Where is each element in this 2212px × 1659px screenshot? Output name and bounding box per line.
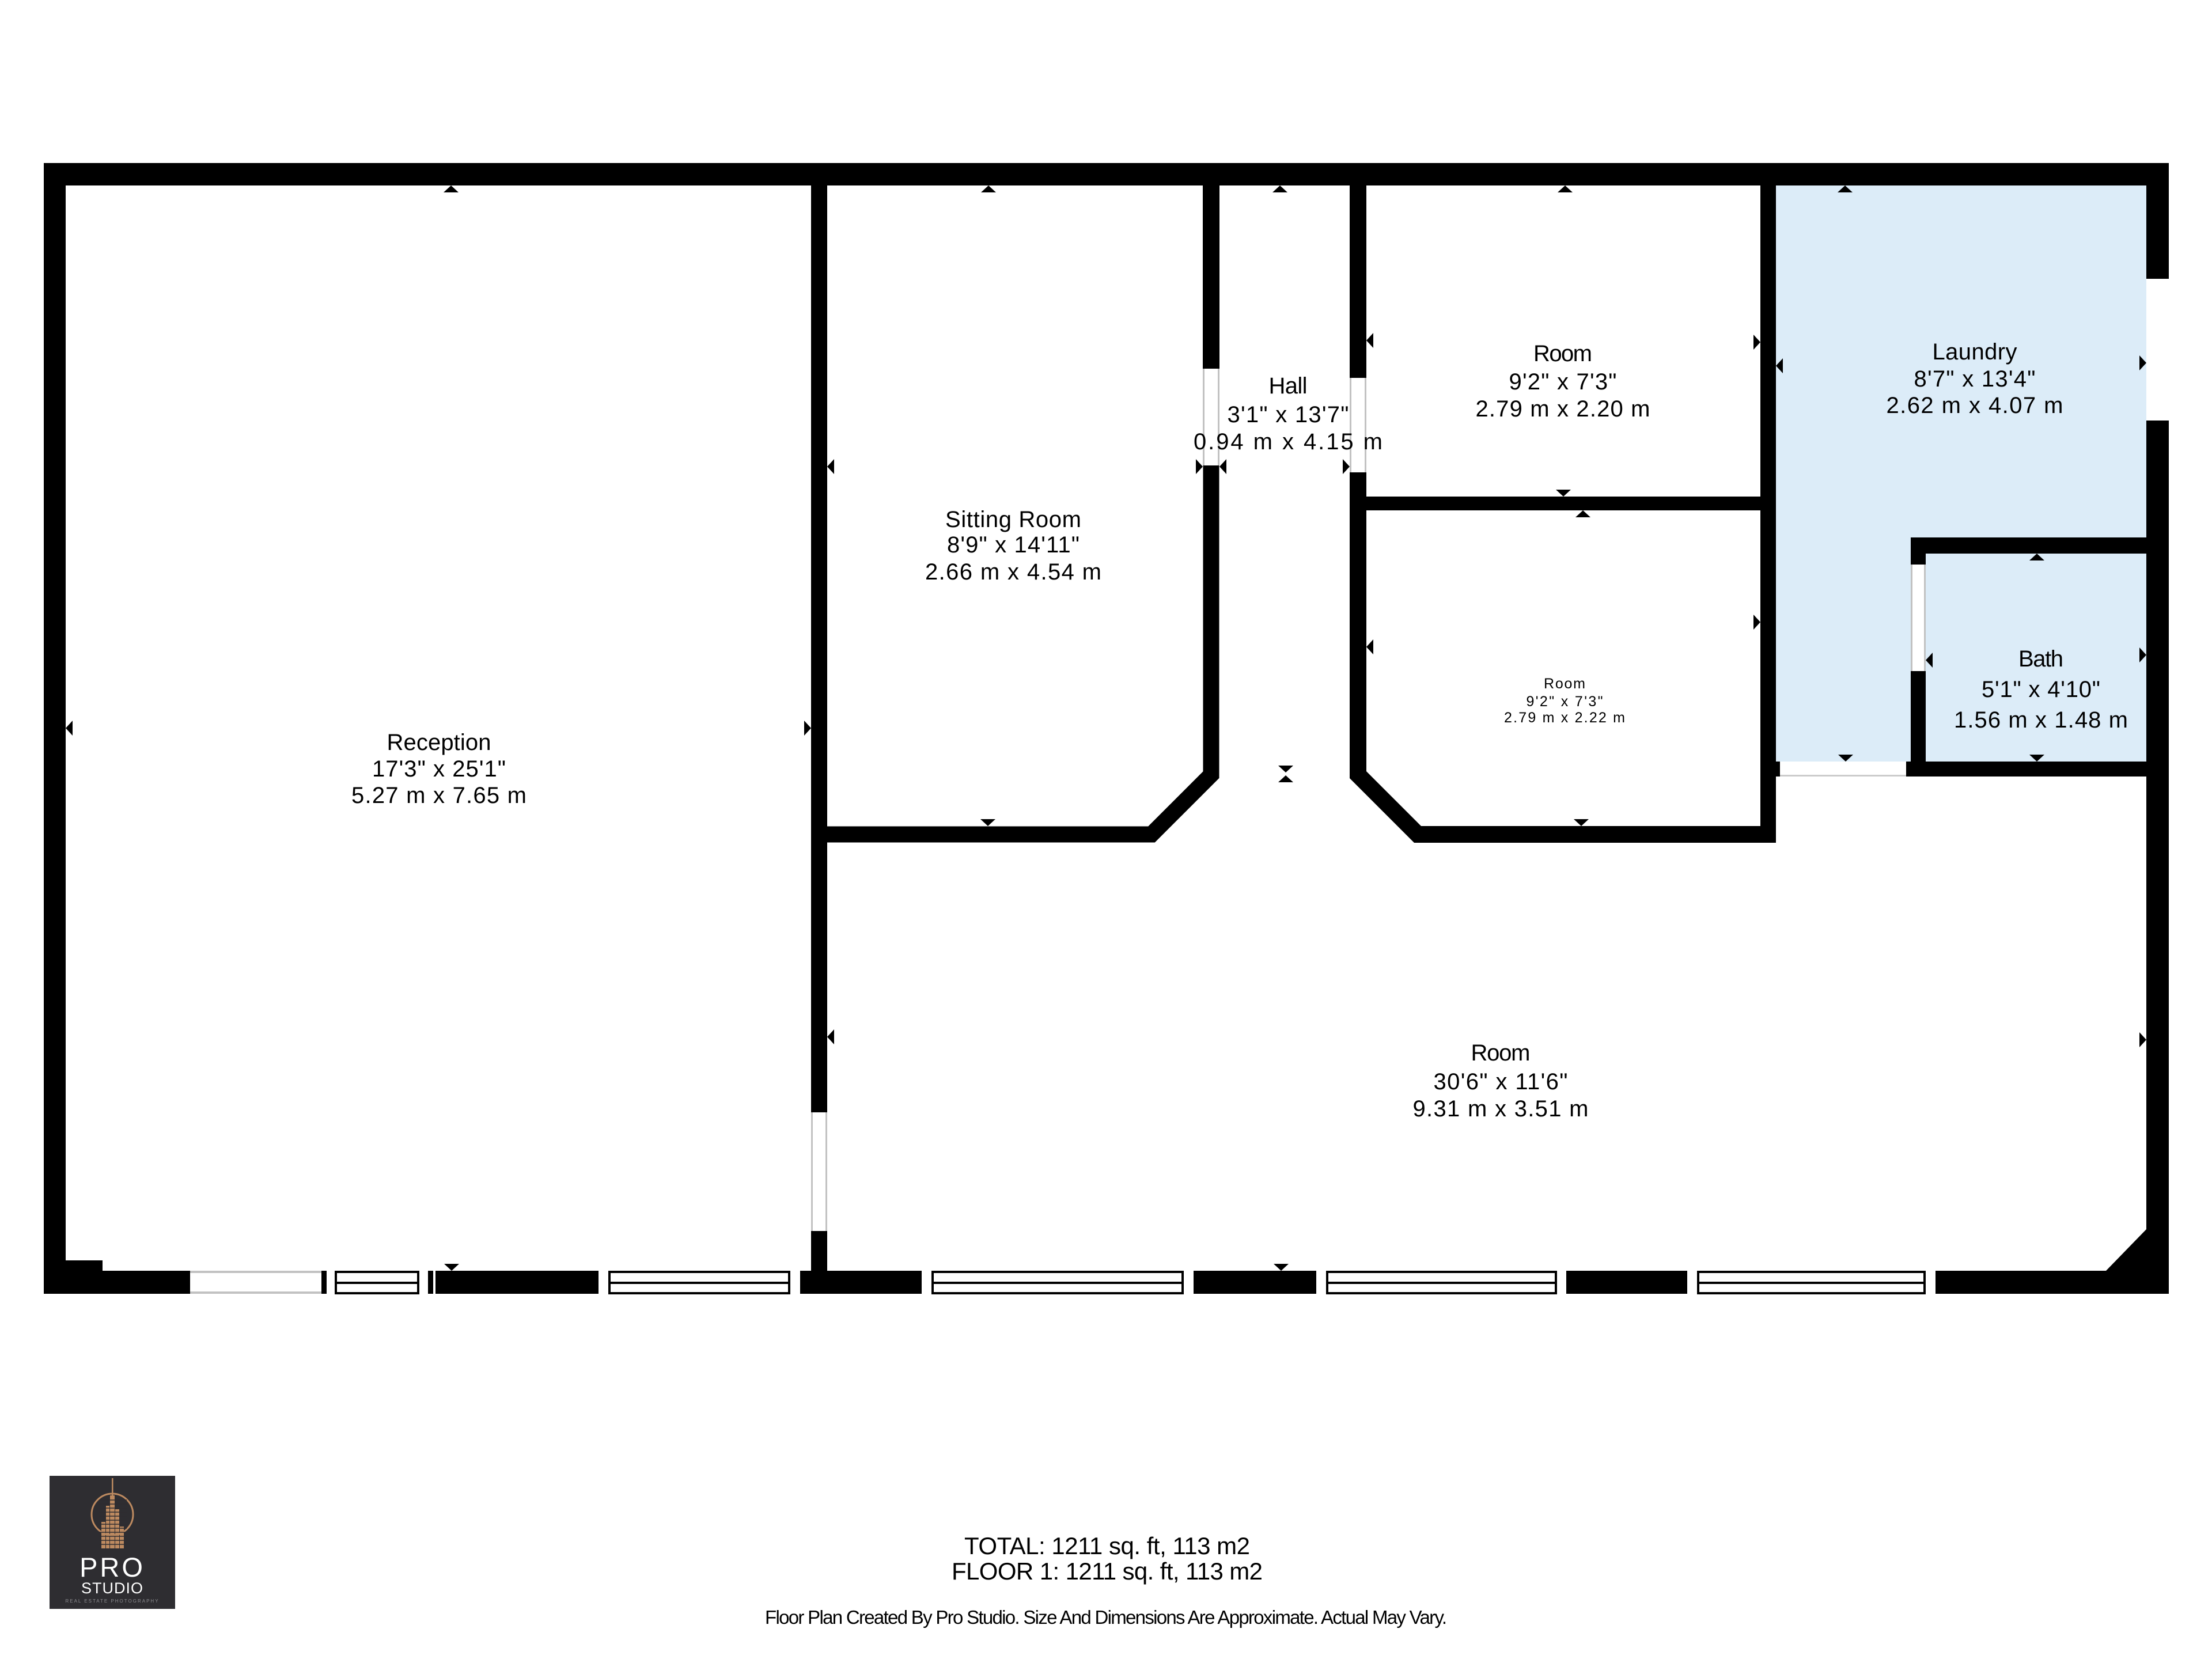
svg-text:Hall: Hall [1269,373,1308,399]
svg-text:17'3" x 25'1": 17'3" x 25'1" [372,756,506,782]
svg-text:Bath: Bath [2018,646,2063,672]
svg-text:STUDIO: STUDIO [81,1580,143,1597]
svg-text:Room: Room [1533,341,1592,366]
svg-text:8'9" x 14'11": 8'9" x 14'11" [947,532,1080,558]
svg-text:9'2" x 7'3": 9'2" x 7'3" [1527,694,1603,710]
svg-text:3'1" x 13'7": 3'1" x 13'7" [1228,402,1349,427]
svg-text:FLOOR 1: 1211 sq. ft, 113 m2: FLOOR 1: 1211 sq. ft, 113 m2 [952,1558,1263,1585]
svg-text:Laundry: Laundry [1933,339,2017,365]
svg-text:9'2" x 7'3": 9'2" x 7'3" [1509,369,1617,395]
svg-text:2.79 m x 2.20 m: 2.79 m x 2.20 m [1476,396,1650,422]
svg-text:PRO: PRO [79,1552,145,1582]
svg-text:30'6" x 11'6": 30'6" x 11'6" [1434,1069,1568,1094]
svg-text:9.31 m x 3.51 m: 9.31 m x 3.51 m [1413,1096,1589,1122]
svg-text:2.62 m x 4.07 m: 2.62 m x 4.07 m [1887,393,2063,418]
svg-text:5.27 m x 7.65 m: 5.27 m x 7.65 m [351,783,527,808]
svg-text:1.56 m x 1.48 m: 1.56 m x 1.48 m [1954,707,2128,733]
svg-text:Floor Plan Created By Pro Stud: Floor Plan Created By Pro Studio. Size A… [765,1607,1447,1628]
svg-text:TOTAL: 1211 sq. ft, 113 m2: TOTAL: 1211 sq. ft, 113 m2 [964,1532,1250,1559]
svg-text:2.66 m x 4.54 m: 2.66 m x 4.54 m [925,559,1101,585]
svg-text:8'7" x 13'4": 8'7" x 13'4" [1914,366,2036,392]
svg-text:Room: Room [1544,676,1585,692]
svg-text:5'1" x 4'10": 5'1" x 4'10" [1982,677,2100,702]
svg-text:Sitting Room: Sitting Room [945,507,1081,532]
svg-text:Reception: Reception [387,730,491,755]
svg-text:REAL ESTATE PHOTOGRAPHY: REAL ESTATE PHOTOGRAPHY [65,1599,159,1604]
svg-text:Room: Room [1471,1040,1531,1066]
